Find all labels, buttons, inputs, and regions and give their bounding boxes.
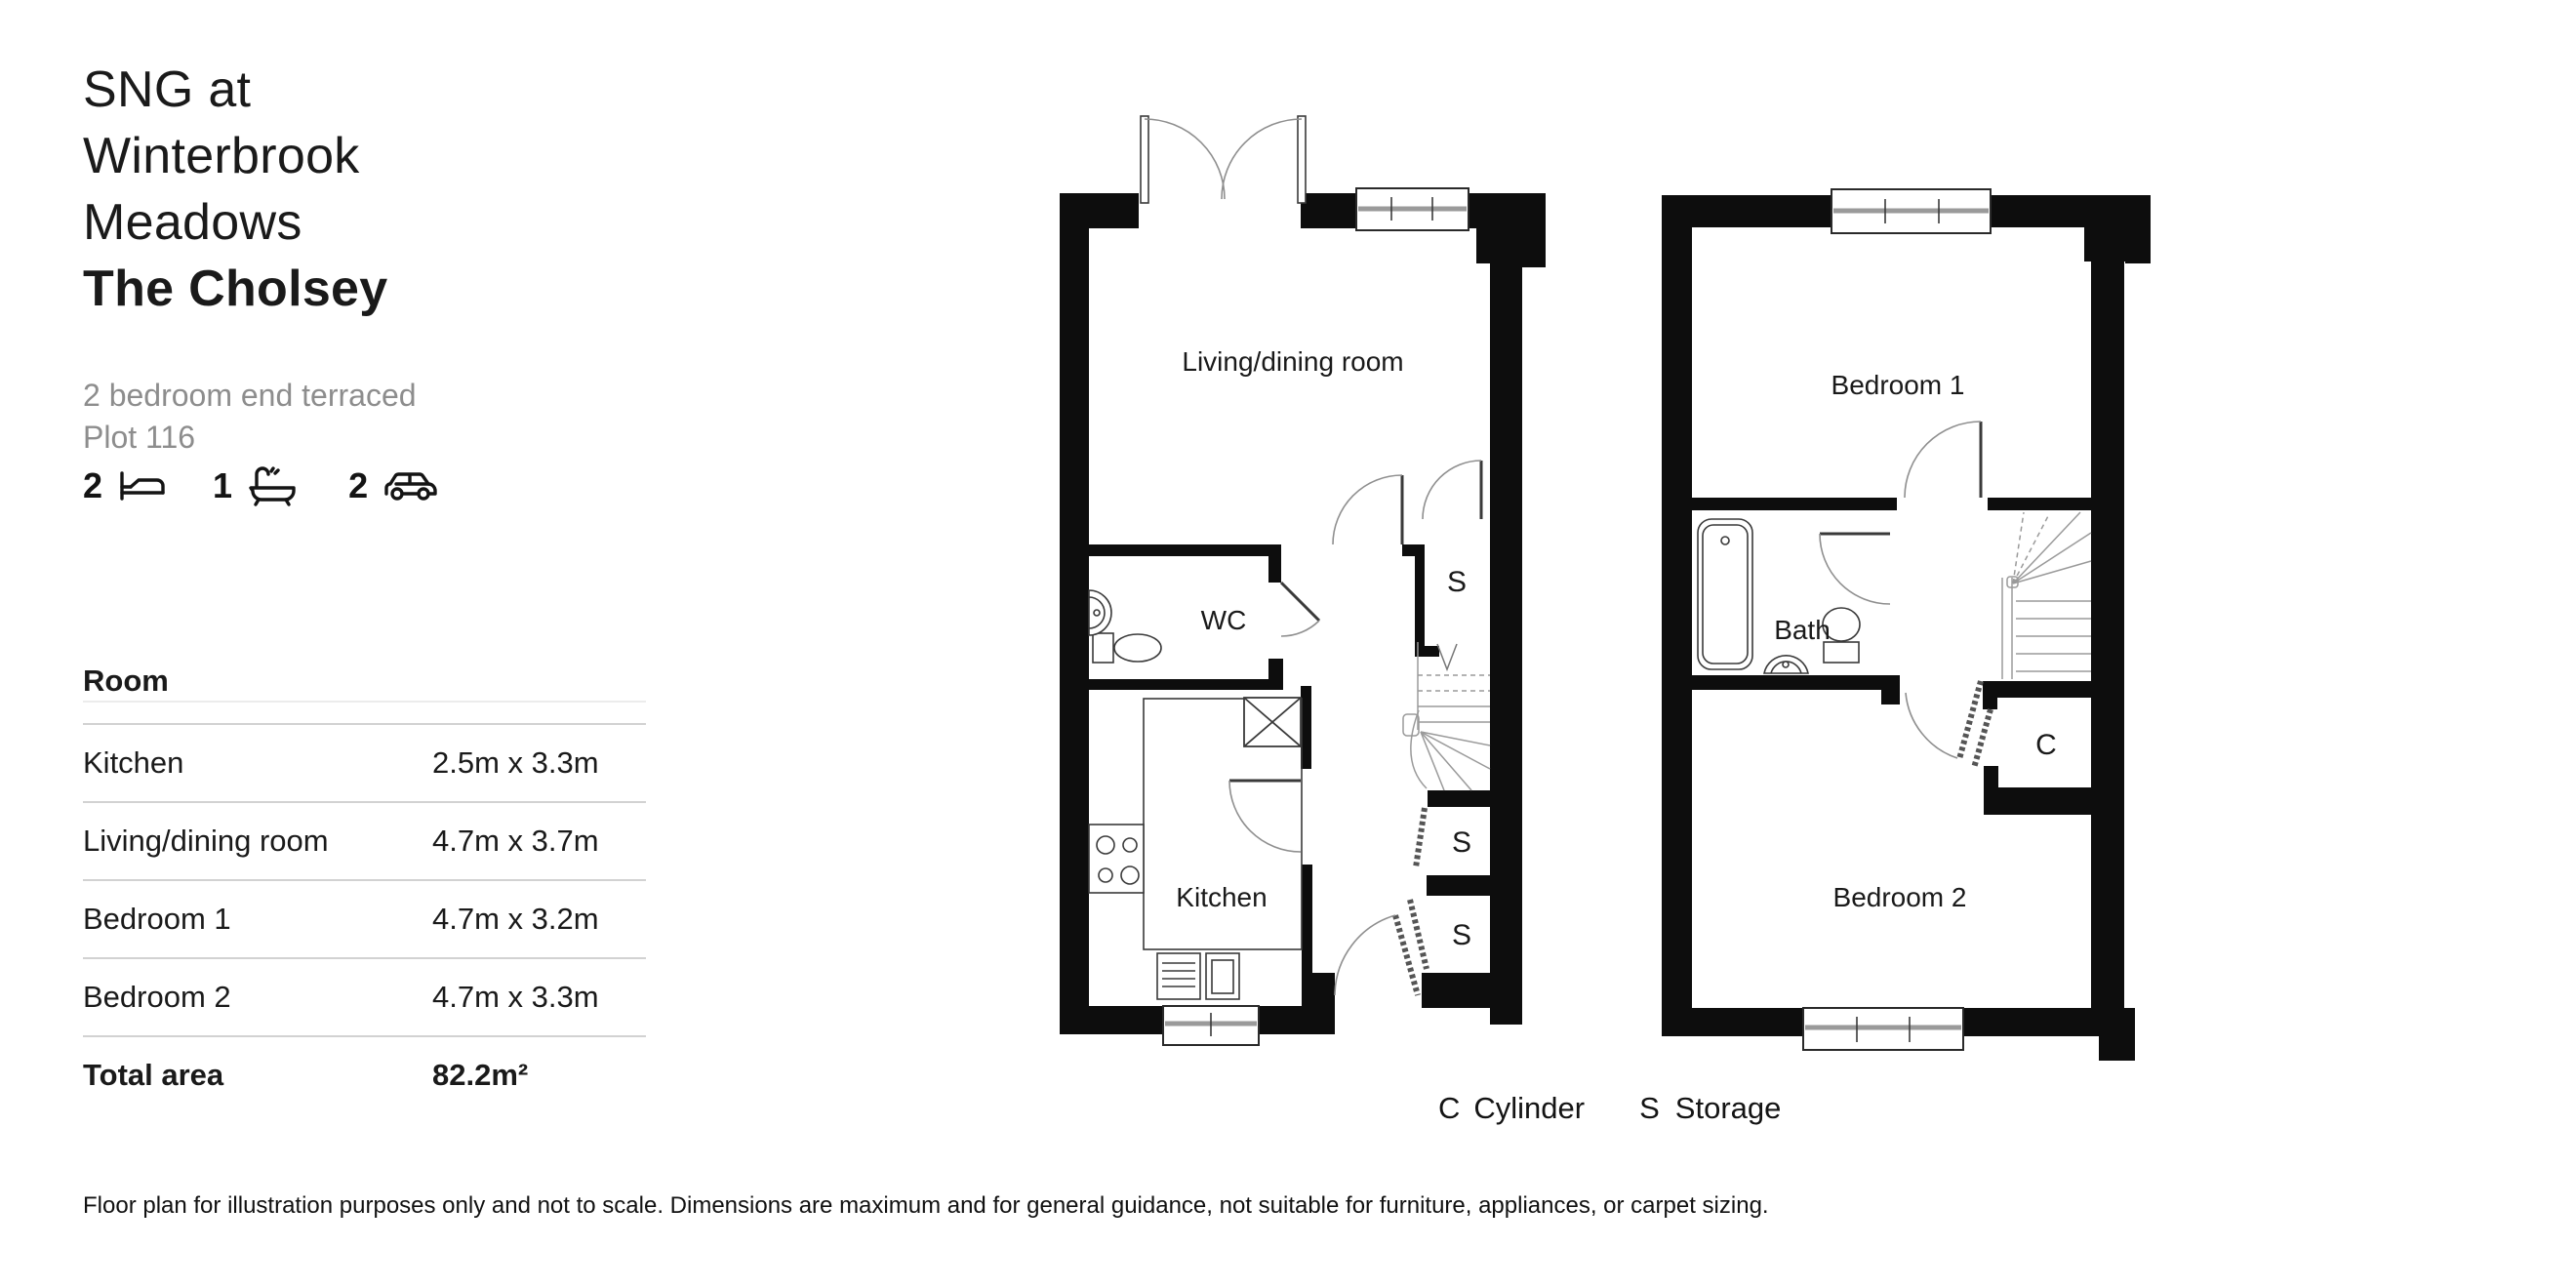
first-floor-labels: Bedroom 1 Bath Bedroom 2 C xyxy=(1774,370,2057,912)
bed-icon xyxy=(115,467,170,504)
bedroom1-label: Bedroom 1 xyxy=(1831,370,1965,400)
bed-count: 2 xyxy=(83,465,102,506)
room-name: Bedroom 2 xyxy=(83,980,231,1015)
room-dimensions-table: Room Kitchen 2.5m x 3.3m Living/dining r… xyxy=(83,664,646,1113)
stairs-ground xyxy=(1403,642,1490,790)
room-size: 4.7m x 3.3m xyxy=(432,980,599,1015)
stairs-first xyxy=(2002,512,2091,679)
property-type: 2 bedroom end terraced xyxy=(83,375,417,417)
room-size: 4.7m x 3.2m xyxy=(432,902,599,937)
kitchen-label: Kitchen xyxy=(1176,882,1267,912)
plan-legend: C Cylinder S Storage xyxy=(1438,1091,1781,1126)
living-room-label: Living/dining room xyxy=(1182,346,1403,377)
french-doors xyxy=(1141,116,1306,203)
bathtub xyxy=(1698,519,1752,669)
parking-count: 2 xyxy=(348,465,368,506)
window-bedroom2-bottom xyxy=(1803,1008,1963,1050)
car-icon xyxy=(381,466,441,505)
ground-floor-plan: Living/dining room WC Kitchen S S S xyxy=(1054,98,1600,1054)
table-spacer xyxy=(83,703,646,723)
wc-toilet xyxy=(1093,633,1161,663)
legend-storage-label: Storage xyxy=(1675,1091,1782,1126)
kitchen-larder-unit xyxy=(1244,698,1301,746)
footer-disclaimer: Floor plan for illustration purposes onl… xyxy=(83,1192,1769,1220)
storage-1-label: S xyxy=(1447,566,1467,598)
window-living-top xyxy=(1356,188,1469,230)
plot-number: Plot 116 xyxy=(83,417,417,459)
room-name: Bedroom 1 xyxy=(83,902,231,937)
storage-3-label: S xyxy=(1452,919,1471,951)
first-floor-plan: Bedroom 1 Bath Bedroom 2 C xyxy=(1659,176,2166,1064)
room-name: Living/dining room xyxy=(83,824,329,859)
table-row-living: Living/dining room 4.7m x 3.7m xyxy=(83,801,646,879)
room-size: 2.5m x 3.3m xyxy=(432,745,599,781)
table-row-bedroom2: Bedroom 2 4.7m x 3.3m xyxy=(83,957,646,1035)
legend-storage-key: S xyxy=(1639,1091,1660,1126)
storage-2-label: S xyxy=(1452,826,1471,859)
title-line-2: Winterbrook xyxy=(83,123,387,189)
house-type-name: The Cholsey xyxy=(83,256,387,322)
table-row-bedroom1: Bedroom 1 4.7m x 3.2m xyxy=(83,879,646,957)
legend-cylinder-key: C xyxy=(1438,1091,1460,1126)
room-size: 4.7m x 3.7m xyxy=(432,824,599,859)
title-line-3: Meadows xyxy=(83,189,387,256)
window-bedroom1-top xyxy=(1831,189,1991,233)
cylinder-label: C xyxy=(2035,729,2057,761)
floorplan-page: SNG at Winterbrook Meadows The Cholsey 2… xyxy=(0,0,2576,1288)
bath-icon xyxy=(245,464,300,507)
bedroom2-label: Bedroom 2 xyxy=(1833,882,1967,912)
wc-label: WC xyxy=(1201,605,1247,635)
bath-count: 1 xyxy=(213,465,232,506)
legend-cylinder-label: Cylinder xyxy=(1473,1091,1585,1126)
ground-floor-walls xyxy=(1060,193,1546,1034)
window-kitchen-bottom xyxy=(1163,1006,1259,1045)
bath-sink xyxy=(1764,656,1808,673)
bath-label: Bath xyxy=(1774,615,1831,645)
total-value: 82.2m² xyxy=(432,1058,528,1093)
table-header: Room xyxy=(83,664,646,703)
total-label: Total area xyxy=(83,1058,223,1093)
first-floor-doors xyxy=(1820,422,1991,768)
feature-summary: 2 1 2 xyxy=(83,463,441,509)
table-row-kitchen: Kitchen 2.5m x 3.3m xyxy=(83,723,646,801)
room-name: Kitchen xyxy=(83,745,183,781)
kitchen-appliances xyxy=(1157,953,1239,999)
kitchen-hob xyxy=(1089,825,1144,893)
title-line-1: SNG at xyxy=(83,57,387,123)
wc-sink xyxy=(1089,590,1111,635)
table-row-total: Total area 82.2m² xyxy=(83,1035,646,1113)
page-title: SNG at Winterbrook Meadows The Cholsey xyxy=(83,57,387,322)
subtitle: 2 bedroom end terraced Plot 116 xyxy=(83,375,417,459)
